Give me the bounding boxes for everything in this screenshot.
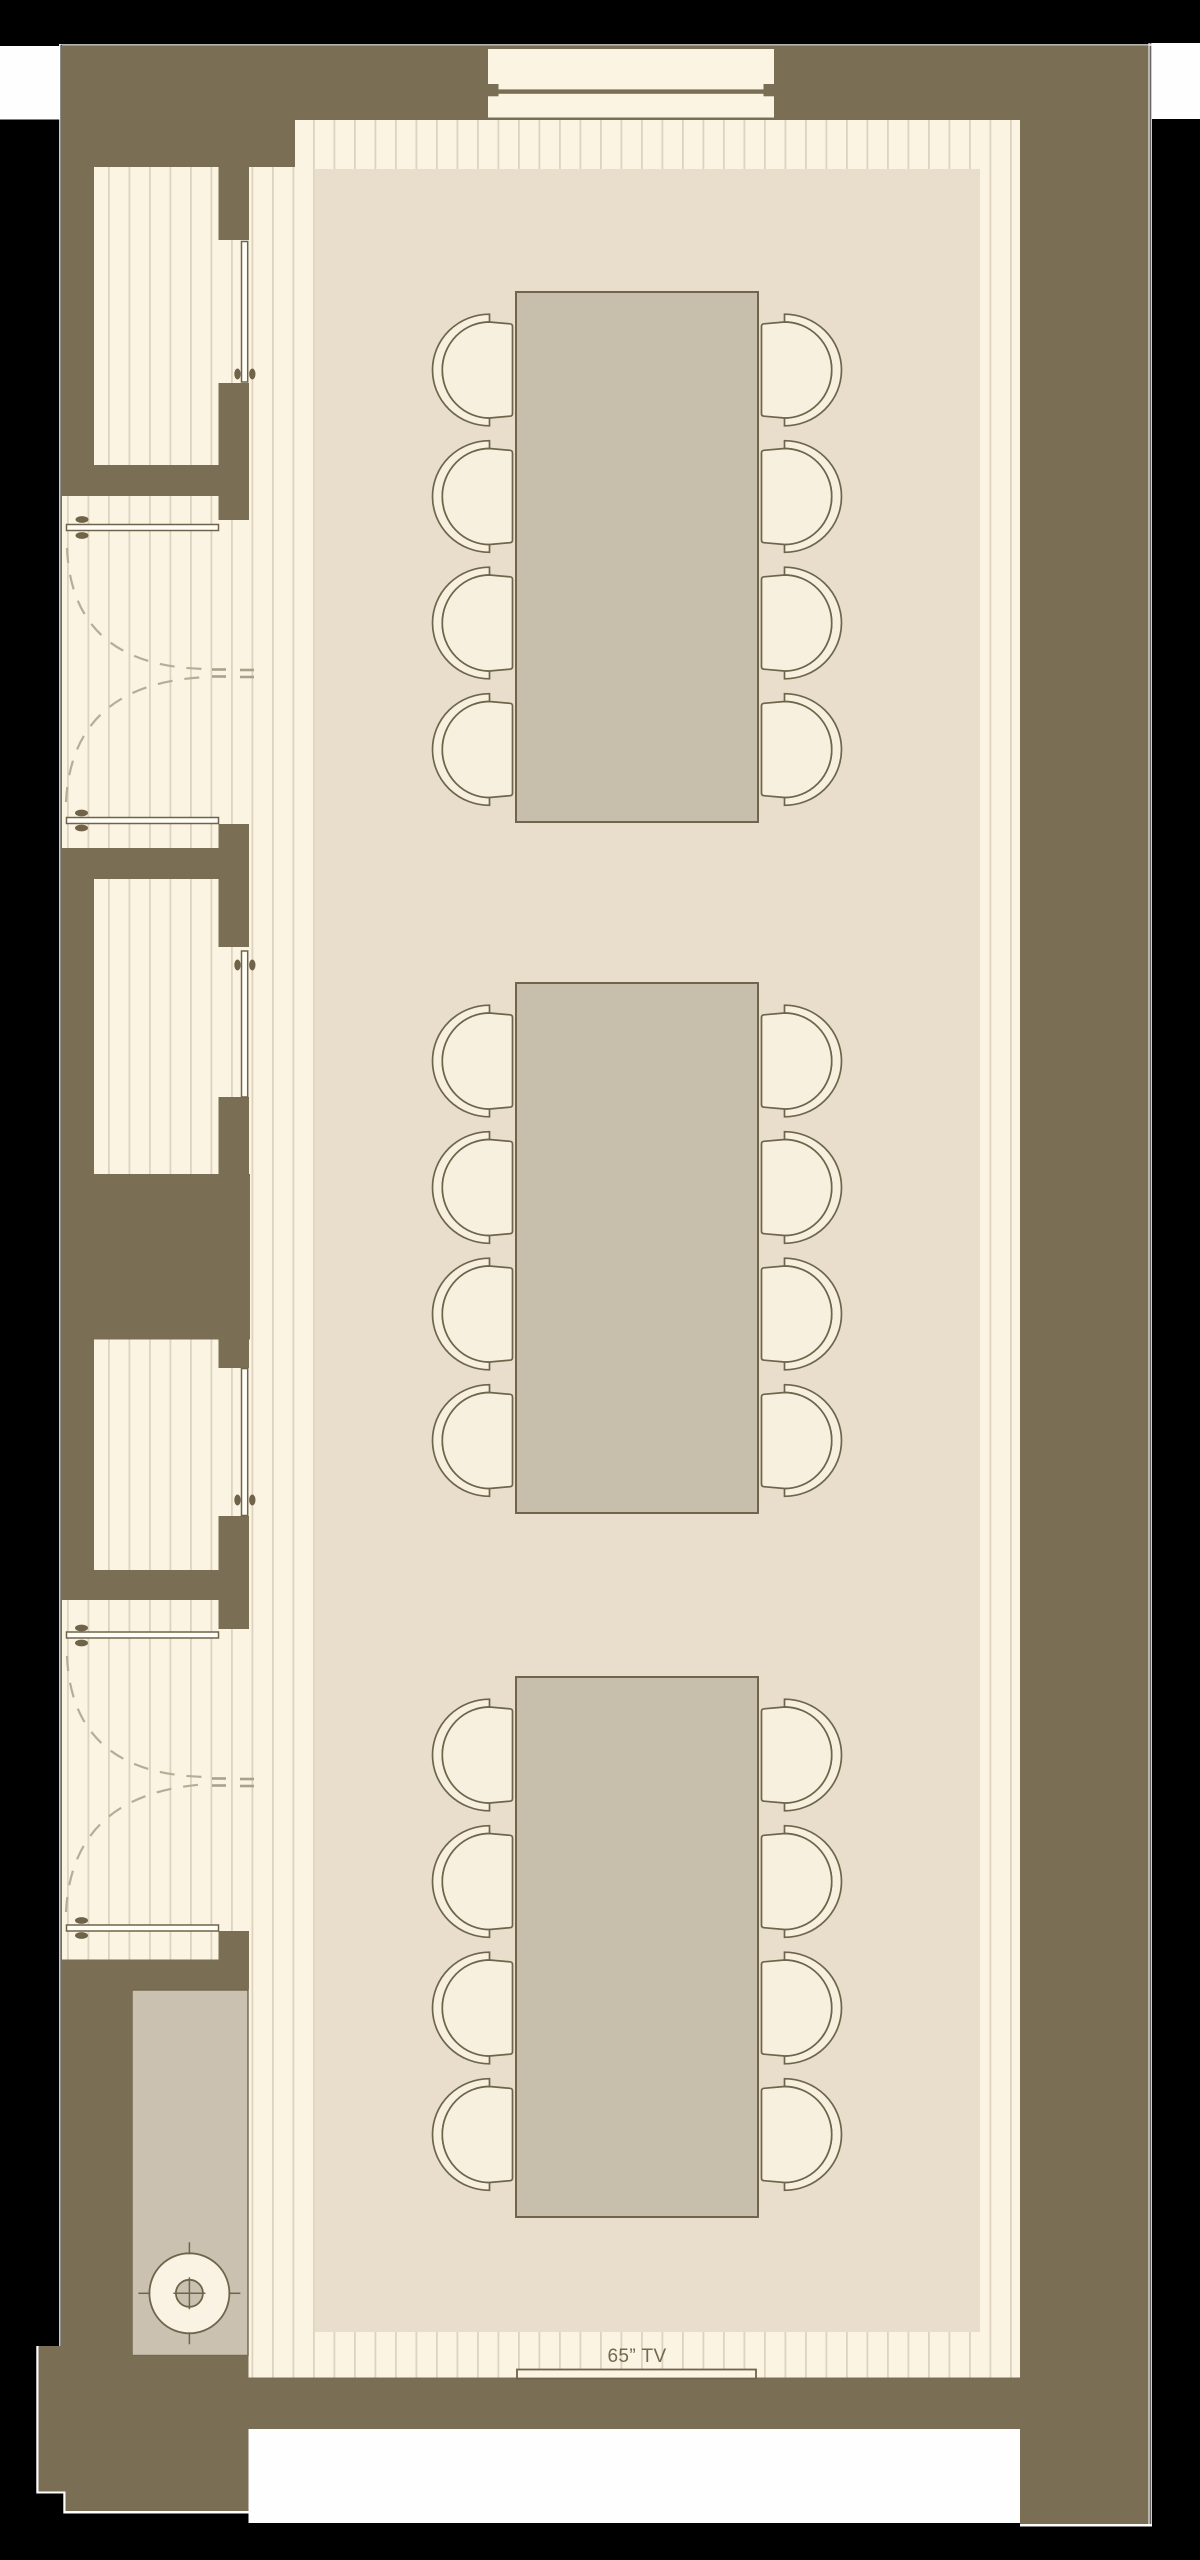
svg-text:65” TV: 65” TV bbox=[607, 2346, 666, 2367]
